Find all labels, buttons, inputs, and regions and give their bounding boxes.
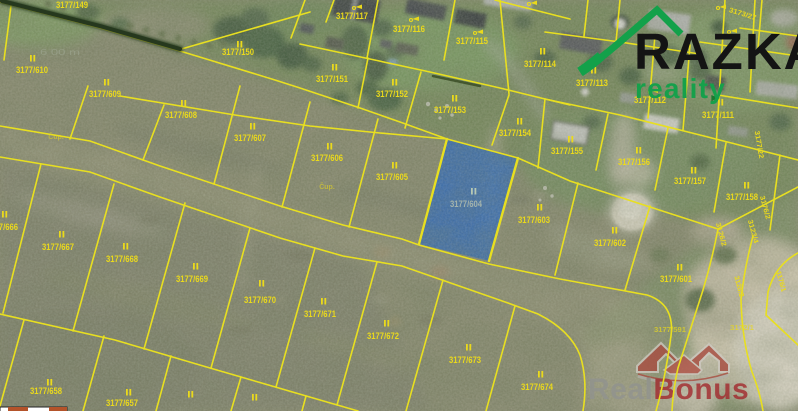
svg-text:3177/117: 3177/117 — [336, 11, 368, 21]
svg-text:3177/605: 3177/605 — [376, 172, 408, 182]
svg-text:6 00 m: 6 00 m — [40, 48, 81, 57]
svg-text:3177/670: 3177/670 — [244, 295, 276, 305]
svg-text:3177/156: 3177/156 — [618, 157, 650, 167]
svg-text:3177/667: 3177/667 — [42, 242, 74, 252]
svg-text:3172/1: 3172/1 — [730, 325, 754, 332]
svg-text:3177/111: 3177/111 — [702, 110, 734, 120]
svg-text:3177/601: 3177/601 — [660, 274, 692, 284]
svg-text:3177/604: 3177/604 — [450, 199, 483, 209]
svg-text:3177/608: 3177/608 — [165, 110, 197, 120]
svg-text:3177/606: 3177/606 — [311, 153, 343, 163]
svg-text:Čup.: Čup. — [48, 132, 64, 141]
svg-text:3177/155: 3177/155 — [551, 146, 583, 156]
svg-text:3177/666: 3177/666 — [0, 222, 18, 232]
svg-text:3177/149: 3177/149 — [56, 0, 88, 10]
svg-text:3177/673: 3177/673 — [449, 355, 481, 365]
svg-text:3177/158: 3177/158 — [726, 192, 758, 202]
svg-text:3177/151: 3177/151 — [316, 74, 348, 84]
svg-text:3177/607: 3177/607 — [234, 133, 266, 143]
svg-text:3177/668: 3177/668 — [106, 254, 138, 264]
svg-text:3177/150: 3177/150 — [222, 47, 254, 57]
svg-text:RealBonus: RealBonus — [588, 373, 749, 406]
svg-text:Čup.: Čup. — [319, 182, 335, 191]
svg-text:3177/116: 3177/116 — [393, 24, 425, 34]
svg-text:3177/610: 3177/610 — [16, 65, 48, 75]
svg-text:RAZKA: RAZKA — [634, 23, 798, 80]
svg-text:3177/672: 3177/672 — [367, 331, 399, 341]
svg-text:3177/674: 3177/674 — [521, 382, 554, 392]
svg-text:3177/115: 3177/115 — [456, 36, 488, 46]
svg-text:3177/603: 3177/603 — [518, 215, 550, 225]
svg-text:3177/657: 3177/657 — [106, 398, 138, 408]
svg-text:3177/602: 3177/602 — [594, 238, 626, 248]
svg-text:3177/157: 3177/157 — [674, 176, 706, 186]
svg-text:3177/154: 3177/154 — [499, 128, 532, 138]
svg-text:reality: reality — [635, 73, 726, 104]
svg-text:3177/152: 3177/152 — [376, 89, 408, 99]
svg-text:3177/114: 3177/114 — [524, 59, 557, 69]
svg-text:3177/658: 3177/658 — [30, 386, 62, 396]
svg-text:3177/671: 3177/671 — [304, 309, 336, 319]
svg-text:3177/113: 3177/113 — [576, 78, 608, 88]
svg-text:3177/609: 3177/609 — [89, 89, 121, 99]
svg-text:3177/669: 3177/669 — [176, 274, 208, 284]
svg-text:3177/591: 3177/591 — [654, 327, 686, 334]
svg-text:3177/153: 3177/153 — [434, 105, 466, 115]
